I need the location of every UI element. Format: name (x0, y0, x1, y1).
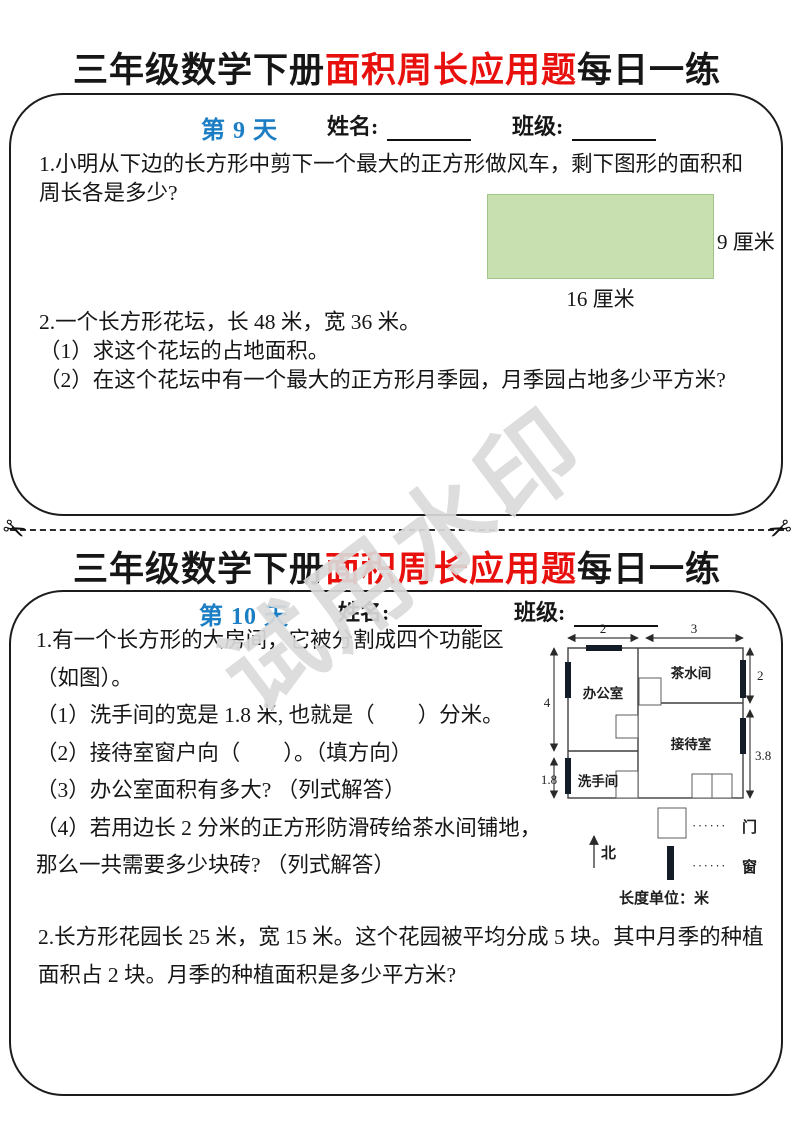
door-symbol-reception-1 (692, 774, 712, 798)
window-symbol-left-upper (565, 662, 571, 698)
title-part-black1: 三年级数学下册 (73, 51, 325, 90)
door-symbol-office (616, 715, 638, 738)
door-symbol-tea (639, 678, 661, 705)
door-symbol-washroom (616, 771, 638, 798)
cut-dashed-line (10, 529, 784, 531)
class-field-day9: 班级: (512, 109, 656, 141)
room-label-reception: 接待室 (671, 736, 712, 752)
day10-problem2-text: 2.长方形花园长 25 米，宽 15 米。这个花园被平均分成 5 块。其中月季的… (38, 918, 764, 994)
day9-problem2-intro: 2.一个长方形花坛，长 48 米，宽 36 米。 (39, 308, 761, 337)
dim-label-top-right: 3 (691, 621, 698, 636)
class-label: 班级: (512, 114, 563, 139)
dim-label-top-left: 2 (600, 621, 607, 636)
day10-problem1-q3: （3）办公室面积有多大? （列式解答） (36, 772, 544, 810)
dim-label-left-lower: 1.8 (541, 772, 557, 787)
title-part-red: 面积周长应用题 (325, 550, 577, 589)
worksheet-page: 三年级数学下册面积周长应用题每日一练 第 9 天 姓名: 班级: 1.小明从下边… (0, 0, 794, 1123)
day9-panel: 第 9 天 姓名: 班级: 1.小明从下边的长方形中剪下一个最大的正方形做风车，… (9, 93, 783, 516)
title-part-red: 面积周长应用题 (325, 51, 577, 90)
window-symbol-right-tea (740, 660, 746, 698)
class-blank-line[interactable] (572, 117, 656, 141)
name-blank-line[interactable] (387, 117, 471, 141)
page-title-day9: 三年级数学下册面积周长应用题每日一练 (0, 42, 794, 93)
legend-door-label: 门 (742, 818, 757, 836)
day10-problem2: 2.长方形花园长 25 米，宽 15 米。这个花园被平均分成 5 块。其中月季的… (38, 918, 764, 994)
day10-problem1-q2: （2）接待室窗户向（ ）。（填方向） (36, 735, 544, 773)
green-rectangle-figure (487, 194, 714, 279)
legend-dots-door: ······ (692, 818, 727, 833)
window-symbol-right-reception (740, 718, 746, 754)
day9-problem2: 2.一个长方形花坛，长 48 米，宽 36 米。 （1）求这个花坛的占地面积。 … (39, 308, 761, 395)
day10-problem1: 1.有一个长方形的大房间，它被分割成四个功能区（如图）。 （1）洗手间的宽是 1… (36, 622, 544, 885)
name-field-day9: 姓名: (327, 109, 471, 141)
day10-problem1-q1: （1）洗手间的宽是 1.8 米, 也就是（ ）分米。 (36, 697, 544, 735)
day10-panel: 第 10 天 姓名: 班级: 1.有一个长方形的大房间，它被分割成四个功能区（如… (9, 590, 783, 1096)
page-title-day10: 三年级数学下册面积周长应用题每日一练 (0, 541, 794, 592)
legend-dots-window: ······ (692, 858, 727, 873)
legend-door-symbol (658, 808, 686, 838)
legend-window-symbol (667, 846, 674, 880)
door-symbol-reception-2 (712, 774, 732, 798)
day9-label: 第 9 天 (201, 110, 278, 145)
dim-label-right-lower: 3.8 (755, 748, 771, 763)
unit-note: 长度单位：米 (619, 889, 710, 907)
day10-problem1-q4: （4）若用边长 2 分米的正方形防滑砖给茶水间铺地，那么一共需要多少块砖? （列… (36, 810, 544, 885)
window-symbol-left-lower (565, 758, 571, 794)
day10-problem1-intro: 1.有一个长方形的大房间，它被分割成四个功能区（如图）。 (36, 622, 514, 697)
name-label: 姓名: (327, 114, 378, 139)
title-part-black2: 每日一练 (577, 51, 721, 90)
figure-height-label: 9 厘米 (717, 226, 775, 256)
day9-problem2-q2: （2）在这个花坛中有一个最大的正方形月季园，月季园占地多少平方米? (39, 366, 761, 395)
floorplan-figure: 办公室 茶水间 接待室 洗手间 2 3 4 1.8 2 3.8 北 ······… (540, 618, 790, 910)
title-part-black2: 每日一练 (577, 550, 721, 589)
day9-problem2-q1: （1）求这个花坛的占地面积。 (39, 337, 761, 366)
dim-label-left-upper: 4 (544, 695, 551, 710)
window-symbol-top (586, 645, 622, 651)
room-label-tea: 茶水间 (670, 665, 712, 681)
title-part-black1: 三年级数学下册 (73, 550, 325, 589)
room-label-office: 办公室 (583, 685, 624, 701)
legend-window-label: 窗 (742, 858, 757, 876)
dim-label-right-upper: 2 (757, 668, 764, 683)
room-label-washroom: 洗手间 (578, 773, 619, 789)
north-label: 北 (601, 845, 616, 862)
